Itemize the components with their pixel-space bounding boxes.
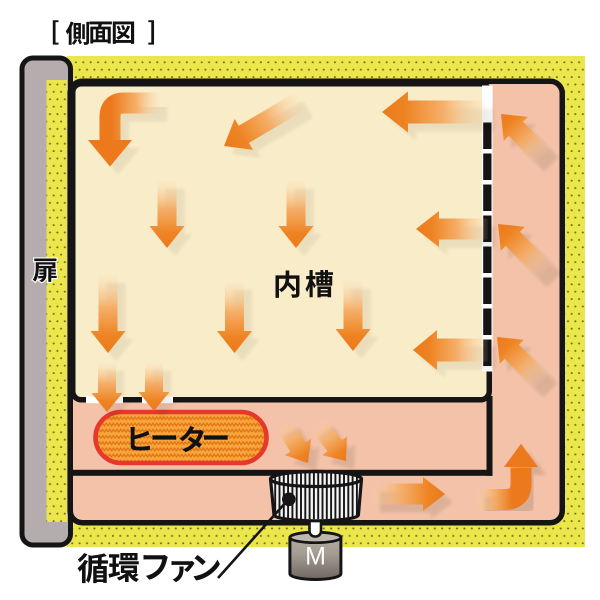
svg-text:M: M [305, 543, 326, 571]
